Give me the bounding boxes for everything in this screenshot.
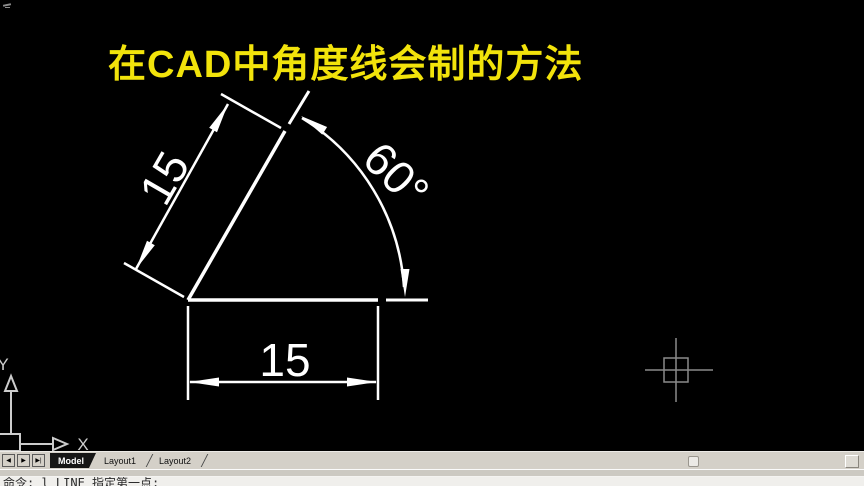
tab-model[interactable]: Model [50, 453, 96, 468]
ucs-origin-box [0, 434, 20, 451]
tab-layout1[interactable]: Layout1 [96, 453, 148, 468]
tab-layout2[interactable]: Layout2 [151, 453, 203, 468]
angular-dim-arrow-top [301, 116, 327, 135]
autocad-model-space: 在CAD中角度线会制的方法 15 15 [0, 0, 864, 486]
horizontal-dim-text[interactable]: 15 [259, 334, 310, 386]
ucs-x-arrowhead [53, 438, 67, 450]
angled-line-60deg[interactable] [188, 131, 285, 300]
aligned-dimension[interactable]: 15 [124, 94, 281, 297]
command-window-divider[interactable] [0, 469, 864, 477]
horizontal-dimension[interactable]: 15 [188, 306, 378, 400]
angular-dim-arrow-bottom [401, 269, 410, 297]
angular-dimension[interactable]: 60° [289, 91, 439, 300]
ucs-y-label: Y [0, 355, 9, 374]
angular-dim-text[interactable]: 60° [353, 132, 439, 218]
hscroll-button[interactable] [845, 455, 859, 468]
aligned-dim-arrow-bottom [136, 241, 155, 269]
status-area: ◀ ▶ ▶| Model Layout1 Layout2 命令: l LINE … [0, 451, 864, 486]
command-line[interactable]: 命令: l LINE 指定第一点: [0, 477, 864, 486]
tabbar-splitter[interactable] [688, 456, 699, 467]
aligned-dim-text[interactable]: 15 [129, 143, 200, 213]
aligned-dim-arrow-top [209, 104, 228, 132]
aligned-dim-extension-top[interactable] [221, 94, 281, 128]
drawing-canvas[interactable]: 15 15 60° Y X [0, 0, 864, 486]
layout-tab-bar: ◀ ▶ ▶| Model Layout1 Layout2 [0, 451, 864, 469]
tab-scroll-prev-button[interactable]: ◀ [2, 454, 15, 467]
crosshair-cursor [645, 338, 713, 402]
horizontal-dim-arrow-right [347, 378, 377, 387]
ucs-y-arrowhead [5, 376, 17, 391]
ucs-icon: Y X [0, 355, 89, 454]
tab-scroll-next-button[interactable]: ▶ [17, 454, 30, 467]
command-line-text: 命令: l LINE 指定第一点: [3, 477, 159, 486]
tab-scroll-last-button[interactable]: ▶| [32, 454, 45, 467]
horizontal-dim-arrow-left [189, 378, 219, 387]
aligned-dim-extension-bottom[interactable] [124, 263, 184, 297]
